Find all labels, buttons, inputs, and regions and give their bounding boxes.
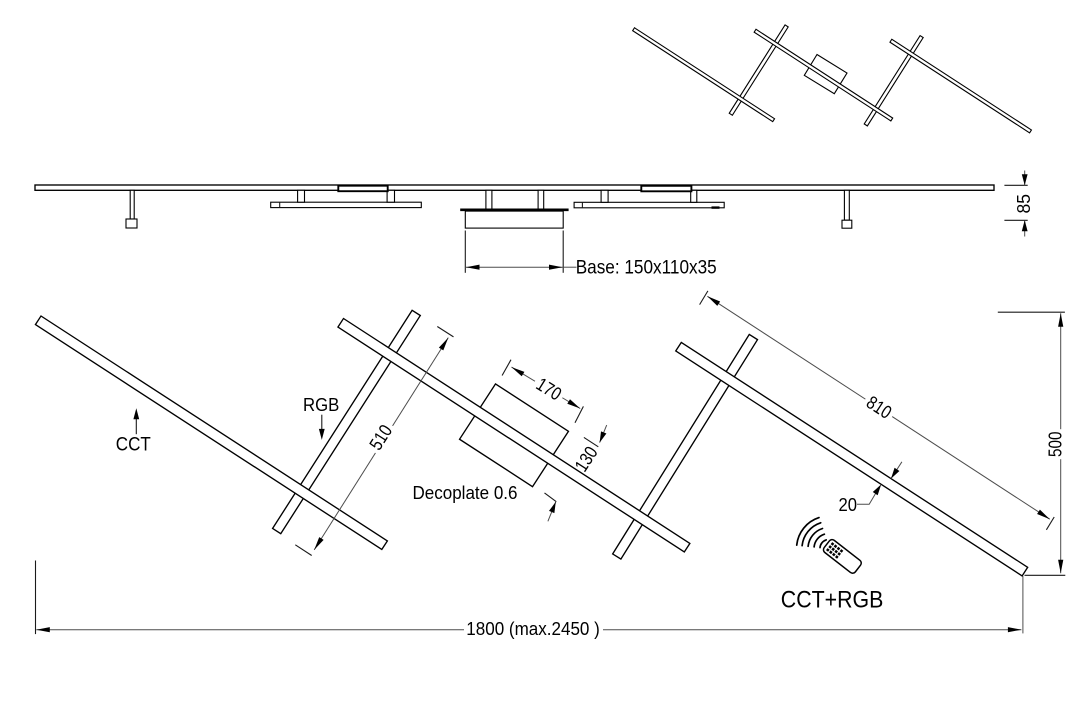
svg-text:Decoplate 0.6: Decoplate 0.6 xyxy=(413,482,518,503)
svg-text:CCT: CCT xyxy=(116,435,151,456)
svg-text:500: 500 xyxy=(1045,431,1066,457)
svg-text:CCT+RGB: CCT+RGB xyxy=(781,586,884,613)
svg-text:RGB: RGB xyxy=(303,394,339,415)
svg-text:85: 85 xyxy=(1014,194,1034,214)
svg-text:20: 20 xyxy=(839,495,858,515)
svg-text:1800 (max.2450 ): 1800 (max.2450 ) xyxy=(466,619,600,639)
svg-text:Base: 150x110x35: Base: 150x110x35 xyxy=(576,257,717,279)
